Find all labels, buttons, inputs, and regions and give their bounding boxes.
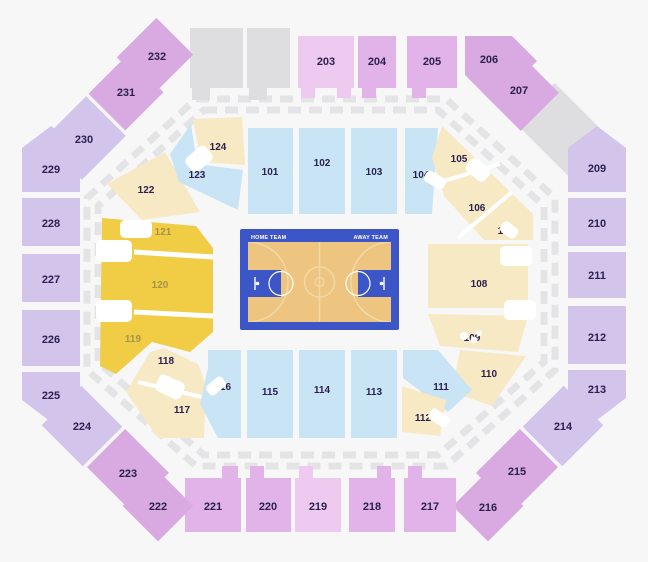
section-101-label: 101 — [262, 167, 279, 178]
section-113-label: 113 — [366, 387, 383, 398]
section-102[interactable] — [299, 128, 345, 214]
section-215-label: 215 — [508, 466, 526, 478]
section-120-label: 120 — [152, 280, 169, 291]
home-team-label: HOME TEAM — [251, 235, 287, 241]
tunnel-left-upper — [96, 240, 132, 262]
away-team-label: AWAY TEAM — [353, 235, 388, 241]
section-224-label: 224 — [73, 421, 92, 433]
section-231-label: 231 — [117, 87, 135, 99]
section-203-tab2 — [337, 88, 351, 98]
section-232-label: 232 — [148, 51, 166, 63]
tunnel-121 — [120, 220, 152, 238]
section-117-label: 117 — [174, 405, 191, 416]
section-216-label: 216 — [479, 502, 497, 514]
arena-seat-map: HOME TEAM AWAY TEAM 203 204 205 206 207 … — [0, 0, 648, 562]
section-229-label: 229 — [42, 164, 60, 176]
section-108-label: 108 — [471, 279, 488, 290]
section-124-label: 124 — [210, 142, 227, 153]
section-217-label: 217 — [421, 501, 439, 513]
tunnel-left-lower — [96, 300, 132, 322]
section-203-tab — [301, 88, 315, 98]
section-221-label: 221 — [204, 501, 222, 513]
section-213-label: 213 — [588, 384, 606, 396]
section-214-label: 214 — [554, 421, 573, 433]
section-123-label: 123 — [189, 170, 206, 181]
section-219-tab — [299, 466, 313, 478]
section-122-label: 122 — [138, 185, 155, 196]
section-111-label: 111 — [433, 382, 449, 393]
section-110-label: 110 — [481, 369, 498, 380]
section-211-label: 211 — [588, 270, 606, 282]
section-217-tab — [408, 466, 422, 478]
section-212-label: 212 — [588, 332, 606, 344]
section-206-label: 206 — [480, 54, 498, 66]
section-230-label: 230 — [75, 134, 93, 146]
section-218-label: 218 — [363, 501, 381, 513]
section-218-tab — [377, 466, 391, 478]
section-210-label: 210 — [588, 218, 606, 230]
section-unavailable-top-1-tab — [192, 88, 210, 100]
section-205-label: 205 — [423, 56, 441, 68]
section-219-label: 219 — [309, 501, 327, 513]
section-209-label: 209 — [588, 163, 606, 175]
section-226-label: 226 — [42, 334, 60, 346]
hoop-right — [380, 282, 384, 286]
section-119-label: 119 — [125, 334, 142, 345]
section-207-label: 207 — [510, 85, 528, 97]
section-203-label: 203 — [317, 56, 335, 68]
section-221-tab — [222, 466, 238, 478]
section-220-tab — [250, 466, 264, 478]
section-121-label: 121 — [155, 227, 172, 238]
section-225-label: 225 — [42, 390, 60, 402]
section-223-label: 223 — [119, 468, 137, 480]
section-204-label: 204 — [368, 56, 387, 68]
section-222-label: 222 — [149, 501, 167, 513]
section-unavailable-top-1 — [190, 28, 243, 88]
section-102-label: 102 — [314, 158, 331, 169]
section-204-tab — [362, 88, 376, 98]
key-right — [358, 270, 391, 297]
section-228-label: 228 — [42, 218, 60, 230]
section-105-label: 105 — [451, 154, 468, 165]
basketball-court: HOME TEAM AWAY TEAM — [208, 229, 431, 330]
section-103-label: 103 — [366, 167, 383, 178]
hoop-left — [256, 282, 260, 286]
section-unavailable-top-2-tab — [249, 88, 267, 100]
section-114-label: 114 — [314, 385, 331, 396]
section-205-tab — [412, 88, 426, 98]
section-115-label: 115 — [262, 387, 279, 398]
section-unavailable-top-2 — [247, 28, 290, 88]
section-106-label: 106 — [469, 203, 486, 214]
key-left — [248, 270, 281, 297]
tunnel-108-upper — [500, 246, 532, 266]
section-220-label: 220 — [259, 501, 277, 513]
tunnel-108-lower — [504, 300, 536, 320]
section-118-label: 118 — [158, 356, 175, 367]
section-227-label: 227 — [42, 274, 60, 286]
